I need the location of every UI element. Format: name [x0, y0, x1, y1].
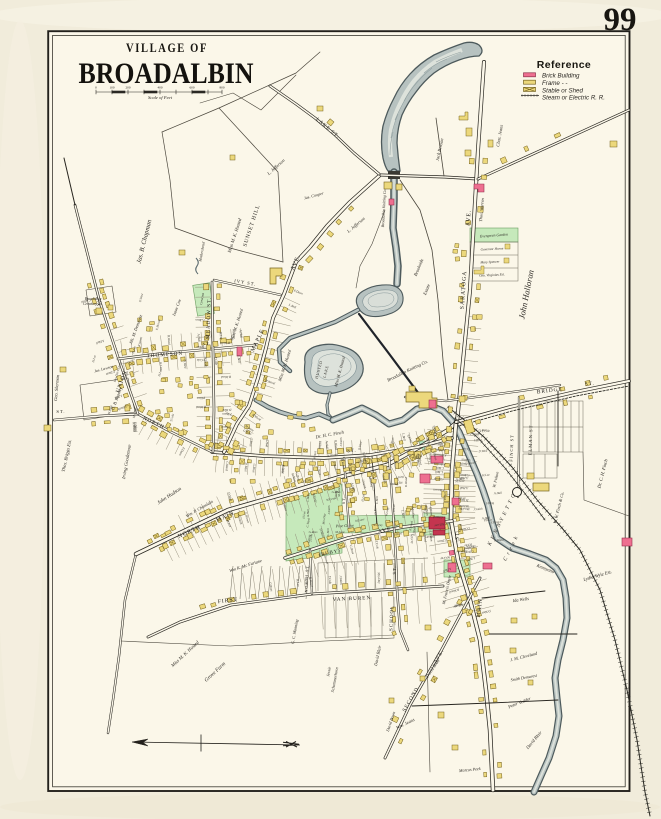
svg-text:ST.: ST.: [341, 496, 346, 505]
svg-text:800: 800: [219, 86, 224, 90]
svg-text:P.Hart: P.Hart: [443, 492, 447, 501]
svg-text:J.Smith: J.Smith: [339, 575, 344, 585]
svg-text:L.Bell: L.Bell: [426, 535, 435, 539]
svg-text:G.Ross: G.Ross: [133, 422, 138, 432]
svg-text:Pine Grove: Pine Grove: [335, 523, 355, 529]
svg-text:200: 200: [125, 86, 130, 90]
svg-text:M.Lane: M.Lane: [334, 530, 345, 534]
svg-text:A.Hall: A.Hall: [265, 438, 269, 448]
svg-text:400: 400: [157, 86, 162, 90]
svg-text:S.King: S.King: [474, 438, 483, 443]
svg-text:H.Lee: H.Lee: [219, 331, 224, 341]
svg-text:R.Wood: R.Wood: [220, 341, 231, 345]
svg-text:T.Cole: T.Cole: [214, 357, 219, 366]
svg-text:S.King: S.King: [486, 501, 495, 506]
svg-text:L.Bell: L.Bell: [375, 496, 379, 505]
svg-text:F.Dean: F.Dean: [222, 412, 233, 416]
svg-text:Stable or Shed: Stable or Shed: [542, 87, 583, 94]
svg-text:AVE.: AVE.: [465, 209, 472, 226]
svg-text:J.Smith: J.Smith: [339, 437, 343, 447]
svg-text:L.Bell: L.Bell: [237, 354, 242, 363]
svg-text:W.Gray: W.Gray: [466, 544, 476, 549]
svg-text:R.Wood: R.Wood: [196, 405, 207, 409]
svg-text:A.Hall: A.Hall: [455, 477, 465, 482]
svg-text:C.Ward: C.Ward: [433, 515, 443, 519]
svg-text:H.Lee: H.Lee: [481, 473, 490, 478]
svg-text:Brick Building: Brick Building: [542, 73, 580, 80]
svg-text:P.Hart: P.Hart: [313, 451, 318, 461]
svg-text:C.Ward: C.Ward: [221, 425, 231, 429]
svg-text:R.Wood: R.Wood: [221, 375, 232, 379]
svg-text:G.Ross: G.Ross: [249, 437, 254, 447]
svg-text:G.Ross: G.Ross: [309, 530, 319, 534]
svg-text:A.Hall: A.Hall: [306, 509, 310, 518]
svg-text:E.Brown: E.Brown: [433, 488, 446, 492]
svg-text:0: 0: [95, 86, 97, 90]
svg-text:C.Ward: C.Ward: [225, 461, 230, 471]
svg-text:G.Ross: G.Ross: [434, 477, 444, 481]
svg-text:VILLAGE OF: VILLAGE OF: [126, 40, 208, 55]
svg-text:C.Ward: C.Ward: [348, 464, 353, 474]
svg-text:BROADALBIN: BROADALBIN: [79, 57, 254, 90]
svg-text:H.Lee: H.Lee: [427, 439, 431, 448]
svg-text:A.Hall: A.Hall: [325, 440, 330, 450]
svg-text:L.Bell: L.Bell: [438, 442, 447, 447]
svg-text:R.Wood: R.Wood: [334, 439, 339, 451]
svg-text:G.Ross: G.Ross: [252, 463, 257, 473]
svg-text:Steam or Electric R. R.: Steam or Electric R. R.: [542, 94, 605, 101]
svg-text:M.Lane: M.Lane: [458, 504, 469, 508]
svg-text:J.Smith: J.Smith: [327, 505, 331, 515]
svg-text:L.Bell: L.Bell: [306, 494, 311, 503]
svg-text:ST.: ST.: [347, 449, 357, 454]
svg-text:A.Hall: A.Hall: [493, 491, 503, 496]
svg-text:D.West: D.West: [222, 408, 232, 412]
svg-text:R.Wood: R.Wood: [404, 477, 408, 488]
svg-text:H.Lee: H.Lee: [457, 496, 466, 500]
svg-text:A.Hall: A.Hall: [460, 486, 470, 490]
svg-text:D.West: D.West: [477, 449, 487, 454]
svg-text:C.Ward: C.Ward: [465, 461, 475, 466]
svg-text:S.King: S.King: [458, 523, 462, 532]
svg-text:S.King: S.King: [307, 534, 312, 543]
svg-text:G.Ross: G.Ross: [195, 318, 205, 322]
svg-text:P.Hart: P.Hart: [318, 440, 322, 450]
svg-text:P.Hart: P.Hart: [197, 396, 207, 400]
svg-text:FINCH ST: FINCH ST: [509, 434, 515, 462]
svg-text:J.Smith: J.Smith: [428, 453, 433, 463]
svg-text:SCHOOL: SCHOOL: [390, 605, 396, 631]
svg-text:ST.: ST.: [392, 565, 397, 574]
svg-text:T.Cole: T.Cole: [461, 447, 470, 452]
svg-text:H.Lee: H.Lee: [196, 345, 205, 349]
svg-text:A.Hall: A.Hall: [239, 329, 244, 339]
svg-text:D.West: D.West: [281, 463, 285, 473]
svg-text:99: 99: [604, 2, 637, 38]
svg-text:P.Hart: P.Hart: [483, 518, 493, 523]
svg-text:G.Ross: G.Ross: [373, 505, 377, 515]
svg-text:Frame - -: Frame - -: [542, 80, 567, 87]
svg-text:C.Ward: C.Ward: [470, 432, 480, 437]
svg-text:Reference: Reference: [537, 59, 591, 71]
svg-text:W.Gray: W.Gray: [373, 523, 383, 527]
svg-text:600: 600: [189, 86, 194, 90]
svg-text:100: 100: [109, 86, 114, 90]
svg-text:J.Smith: J.Smith: [473, 507, 483, 512]
svg-text:ST.: ST.: [56, 409, 65, 414]
svg-text:A.Hall: A.Hall: [197, 333, 202, 343]
svg-text:T.Cole: T.Cole: [196, 358, 205, 362]
svg-text:L.Bell: L.Bell: [435, 470, 444, 474]
svg-text:T.Cole: T.Cole: [328, 576, 332, 585]
svg-text:Scale of Feet: Scale of Feet: [148, 95, 173, 100]
svg-text:T.Cole: T.Cole: [482, 429, 491, 434]
svg-text:H.Lee: H.Lee: [392, 504, 396, 513]
svg-text:L.Bell: L.Bell: [326, 528, 330, 537]
svg-text:Mrs.Day: Mrs.Day: [377, 571, 382, 584]
svg-text:D.West: D.West: [244, 461, 249, 471]
svg-text:R.Wood: R.Wood: [493, 538, 504, 543]
